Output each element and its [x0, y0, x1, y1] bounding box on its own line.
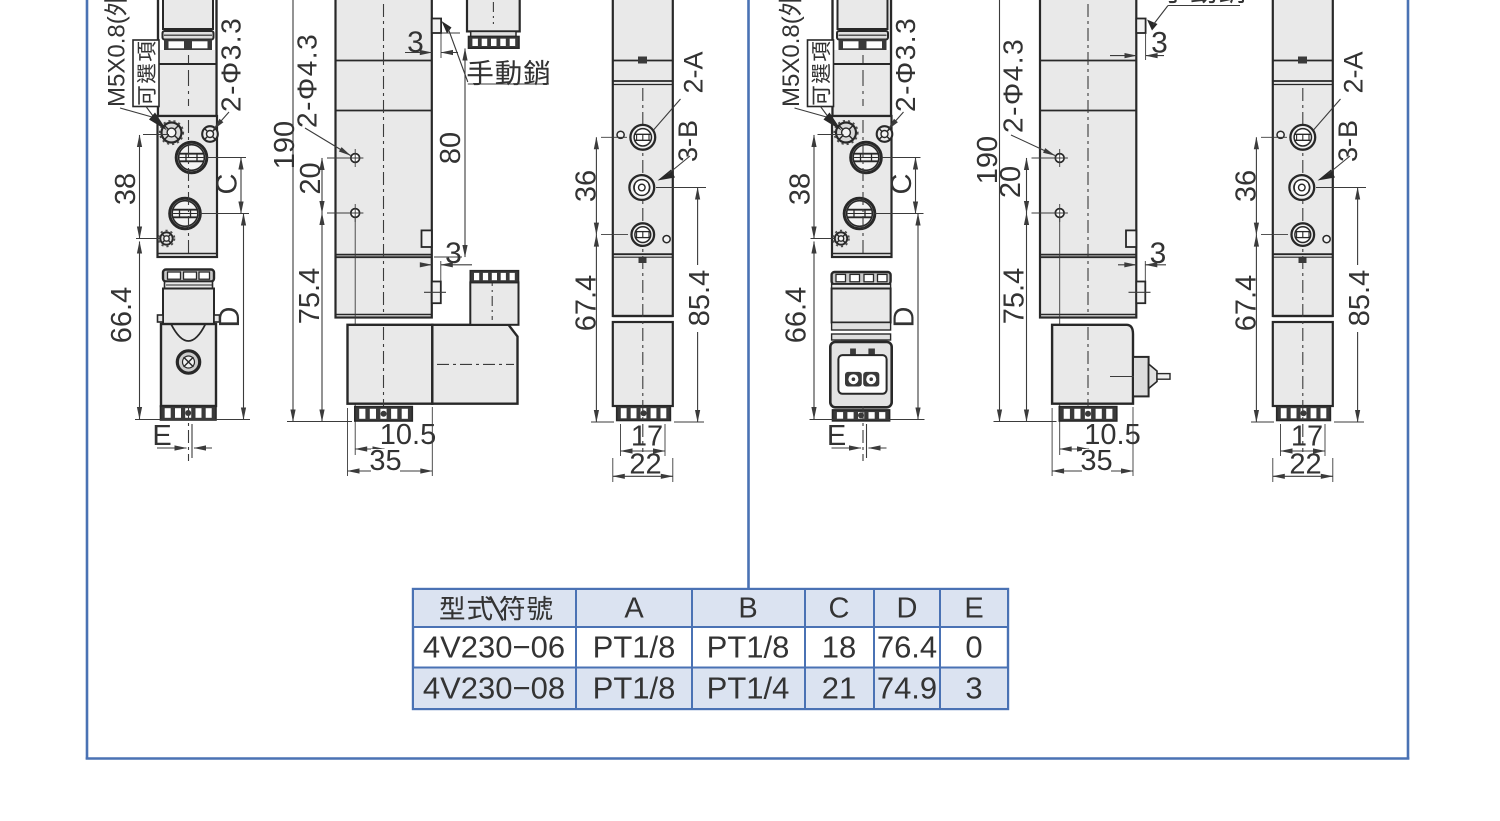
- svg-text:PT1/4: PT1/4: [707, 671, 790, 706]
- svg-text:D: D: [214, 307, 246, 328]
- svg-text:E: E: [152, 420, 171, 452]
- svg-text:E: E: [827, 420, 846, 452]
- svg-text:85.4: 85.4: [684, 270, 716, 326]
- svg-text:M5X0.8(外六角: M5X0.8(外六角: [778, 0, 805, 107]
- svg-text:C: C: [212, 174, 244, 195]
- svg-text:35: 35: [369, 445, 401, 477]
- svg-text:4V230−08: 4V230−08: [423, 671, 565, 706]
- svg-text:E: E: [964, 593, 983, 625]
- svg-text:0: 0: [965, 630, 982, 665]
- svg-text:190: 190: [269, 121, 301, 169]
- svg-text:21: 21: [822, 671, 856, 706]
- svg-text:2-Φ3.3: 2-Φ3.3: [890, 17, 921, 112]
- svg-text:190: 190: [972, 136, 1004, 184]
- svg-text:67.4: 67.4: [571, 275, 603, 331]
- svg-text:2-A: 2-A: [1339, 51, 1369, 93]
- svg-text:C: C: [886, 174, 918, 195]
- svg-text:36: 36: [1231, 170, 1263, 202]
- svg-text:85.4: 85.4: [1344, 270, 1376, 326]
- svg-text:35: 35: [1080, 445, 1112, 477]
- svg-text:38: 38: [110, 173, 142, 205]
- svg-text:2-Φ3.3: 2-Φ3.3: [216, 17, 247, 112]
- svg-text:3: 3: [407, 26, 424, 59]
- svg-text:2-Φ4.3: 2-Φ4.3: [292, 33, 323, 128]
- svg-text:3: 3: [965, 671, 982, 706]
- svg-text:A: A: [624, 593, 644, 625]
- svg-text:4V230−06: 4V230−06: [423, 630, 565, 665]
- svg-text:76.4: 76.4: [877, 630, 937, 665]
- svg-text:C: C: [829, 593, 850, 625]
- svg-text:36: 36: [571, 170, 603, 202]
- svg-text:2-Φ4.3: 2-Φ4.3: [998, 38, 1029, 133]
- svg-text:D: D: [889, 307, 921, 328]
- svg-text:2-A: 2-A: [679, 51, 709, 93]
- svg-text:75.4: 75.4: [294, 268, 326, 324]
- svg-text:66.4: 66.4: [106, 287, 138, 343]
- svg-text:B: B: [738, 593, 757, 625]
- svg-text:M5X0.8(外六角: M5X0.8(外六角: [104, 0, 131, 107]
- svg-text:66.4: 66.4: [781, 287, 813, 343]
- svg-text:PT1/8: PT1/8: [593, 671, 676, 706]
- svg-text:3-B: 3-B: [673, 120, 703, 162]
- svg-text:67.4: 67.4: [1231, 275, 1263, 331]
- svg-text:22: 22: [629, 449, 661, 481]
- svg-text:18: 18: [822, 630, 856, 665]
- svg-text:80: 80: [435, 132, 467, 164]
- svg-text:22: 22: [1289, 449, 1321, 481]
- svg-text:D: D: [897, 593, 918, 625]
- svg-text:3-B: 3-B: [1333, 120, 1363, 162]
- svg-text:74.9: 74.9: [877, 671, 937, 706]
- svg-text:PT1/8: PT1/8: [593, 630, 676, 665]
- svg-text:3: 3: [1151, 27, 1168, 60]
- svg-text:75.4: 75.4: [999, 268, 1031, 324]
- svg-text:38: 38: [785, 173, 817, 205]
- svg-text:PT1/8: PT1/8: [707, 630, 790, 665]
